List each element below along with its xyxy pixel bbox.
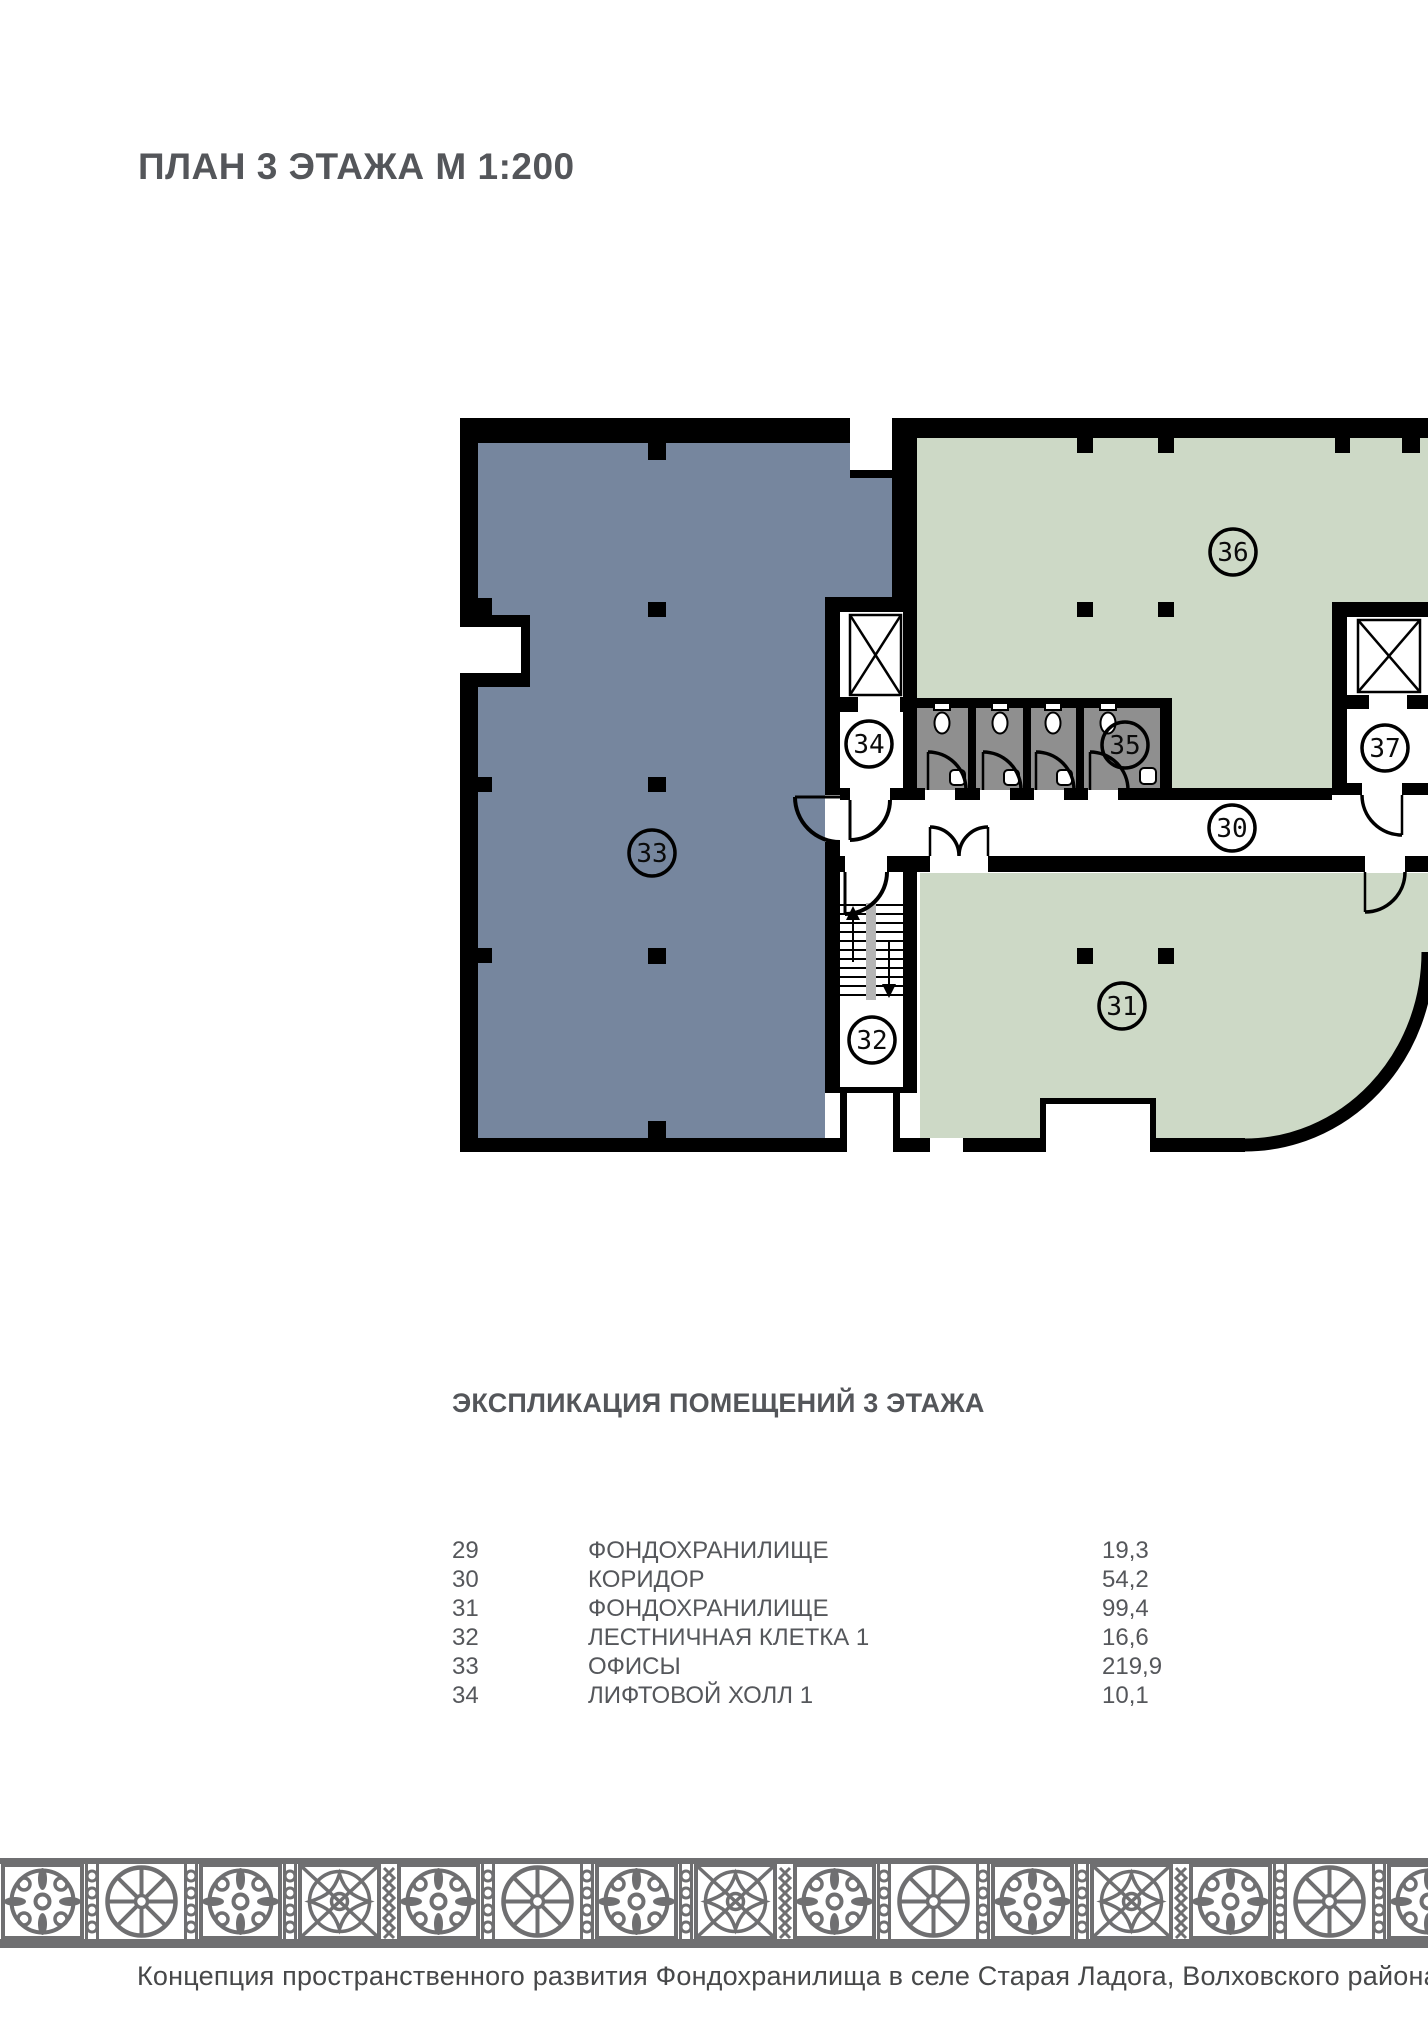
elevator-door-1 xyxy=(855,697,903,712)
row-area: 19,3 xyxy=(1102,1536,1222,1565)
explication-table: 29 ФОНДОХРАНИЛИЩЕ 19,3 30 КОРИДОР 54,2 3… xyxy=(452,1536,1232,1710)
floor-plan: 33 34 35 36 37 30 31 32 xyxy=(0,0,1428,1250)
row-number: 32 xyxy=(452,1623,588,1652)
svg-text:35: 35 xyxy=(1109,731,1140,761)
row-number: 33 xyxy=(452,1652,588,1681)
room-label-34: 34 xyxy=(846,721,892,767)
room-label-30: 30 xyxy=(1209,805,1255,851)
table-row: 30 КОРИДОР 54,2 xyxy=(452,1565,1232,1594)
row-area: 219,9 xyxy=(1102,1652,1222,1681)
svg-text:33: 33 xyxy=(636,839,667,869)
stairs xyxy=(840,903,903,1000)
svg-text:30: 30 xyxy=(1216,814,1247,844)
ornament-border xyxy=(0,1856,1428,1948)
entry-niche xyxy=(847,1093,893,1152)
svg-text:31: 31 xyxy=(1106,992,1137,1022)
row-area: 10,1 xyxy=(1102,1681,1222,1710)
room-label-37: 37 xyxy=(1362,725,1408,771)
row-name: ФОНДОХРАНИЛИЩЕ xyxy=(588,1536,1102,1565)
table-row: 32 ЛЕСТНИЧНАЯ КЛЕТКА 1 16,6 xyxy=(452,1623,1232,1652)
room31-recess xyxy=(1046,1104,1150,1154)
room31-door-gap xyxy=(930,1138,963,1154)
table-row: 31 ФОНДОХРАНИЛИЩЕ 99,4 xyxy=(452,1594,1232,1623)
row-number: 31 xyxy=(452,1594,588,1623)
row-name: ЛЕСТНИЧНАЯ КЛЕТКА 1 xyxy=(588,1623,1102,1652)
svg-text:37: 37 xyxy=(1369,734,1400,764)
row-number: 29 xyxy=(452,1536,588,1565)
table-row: 29 ФОНДОХРАНИЛИЩЕ 19,3 xyxy=(452,1536,1232,1565)
sheet: ПЛАН 3 ЭТАЖА М 1:200 xyxy=(0,0,1428,2018)
explication-heading: ЭКСПЛИКАЦИЯ ПОМЕЩЕНИЙ 3 ЭТАЖА xyxy=(452,1388,985,1419)
row-number: 30 xyxy=(452,1565,588,1594)
row-name: КОРИДОР xyxy=(588,1565,1102,1594)
row-area: 16,6 xyxy=(1102,1623,1222,1652)
row-number: 34 xyxy=(452,1681,588,1710)
table-row: 33 ОФИСЫ 219,9 xyxy=(452,1652,1232,1681)
room-label-32: 32 xyxy=(849,1017,895,1063)
row-name: ОФИСЫ xyxy=(588,1652,1102,1681)
svg-text:36: 36 xyxy=(1217,538,1248,568)
row-name: ЛИФТОВОЙ ХОЛЛ 1 xyxy=(588,1681,1102,1710)
svg-text:34: 34 xyxy=(853,730,884,760)
row-name: ФОНДОХРАНИЛИЩЕ xyxy=(588,1594,1102,1623)
left-notch xyxy=(440,627,523,673)
svg-text:32: 32 xyxy=(856,1026,887,1056)
footer-caption: Концепция пространственного развития Фон… xyxy=(137,1961,1428,1992)
row-area: 99,4 xyxy=(1102,1594,1222,1623)
table-row: 34 ЛИФТОВОЙ ХОЛЛ 1 10,1 xyxy=(452,1681,1232,1710)
row-area: 54,2 xyxy=(1102,1565,1222,1594)
